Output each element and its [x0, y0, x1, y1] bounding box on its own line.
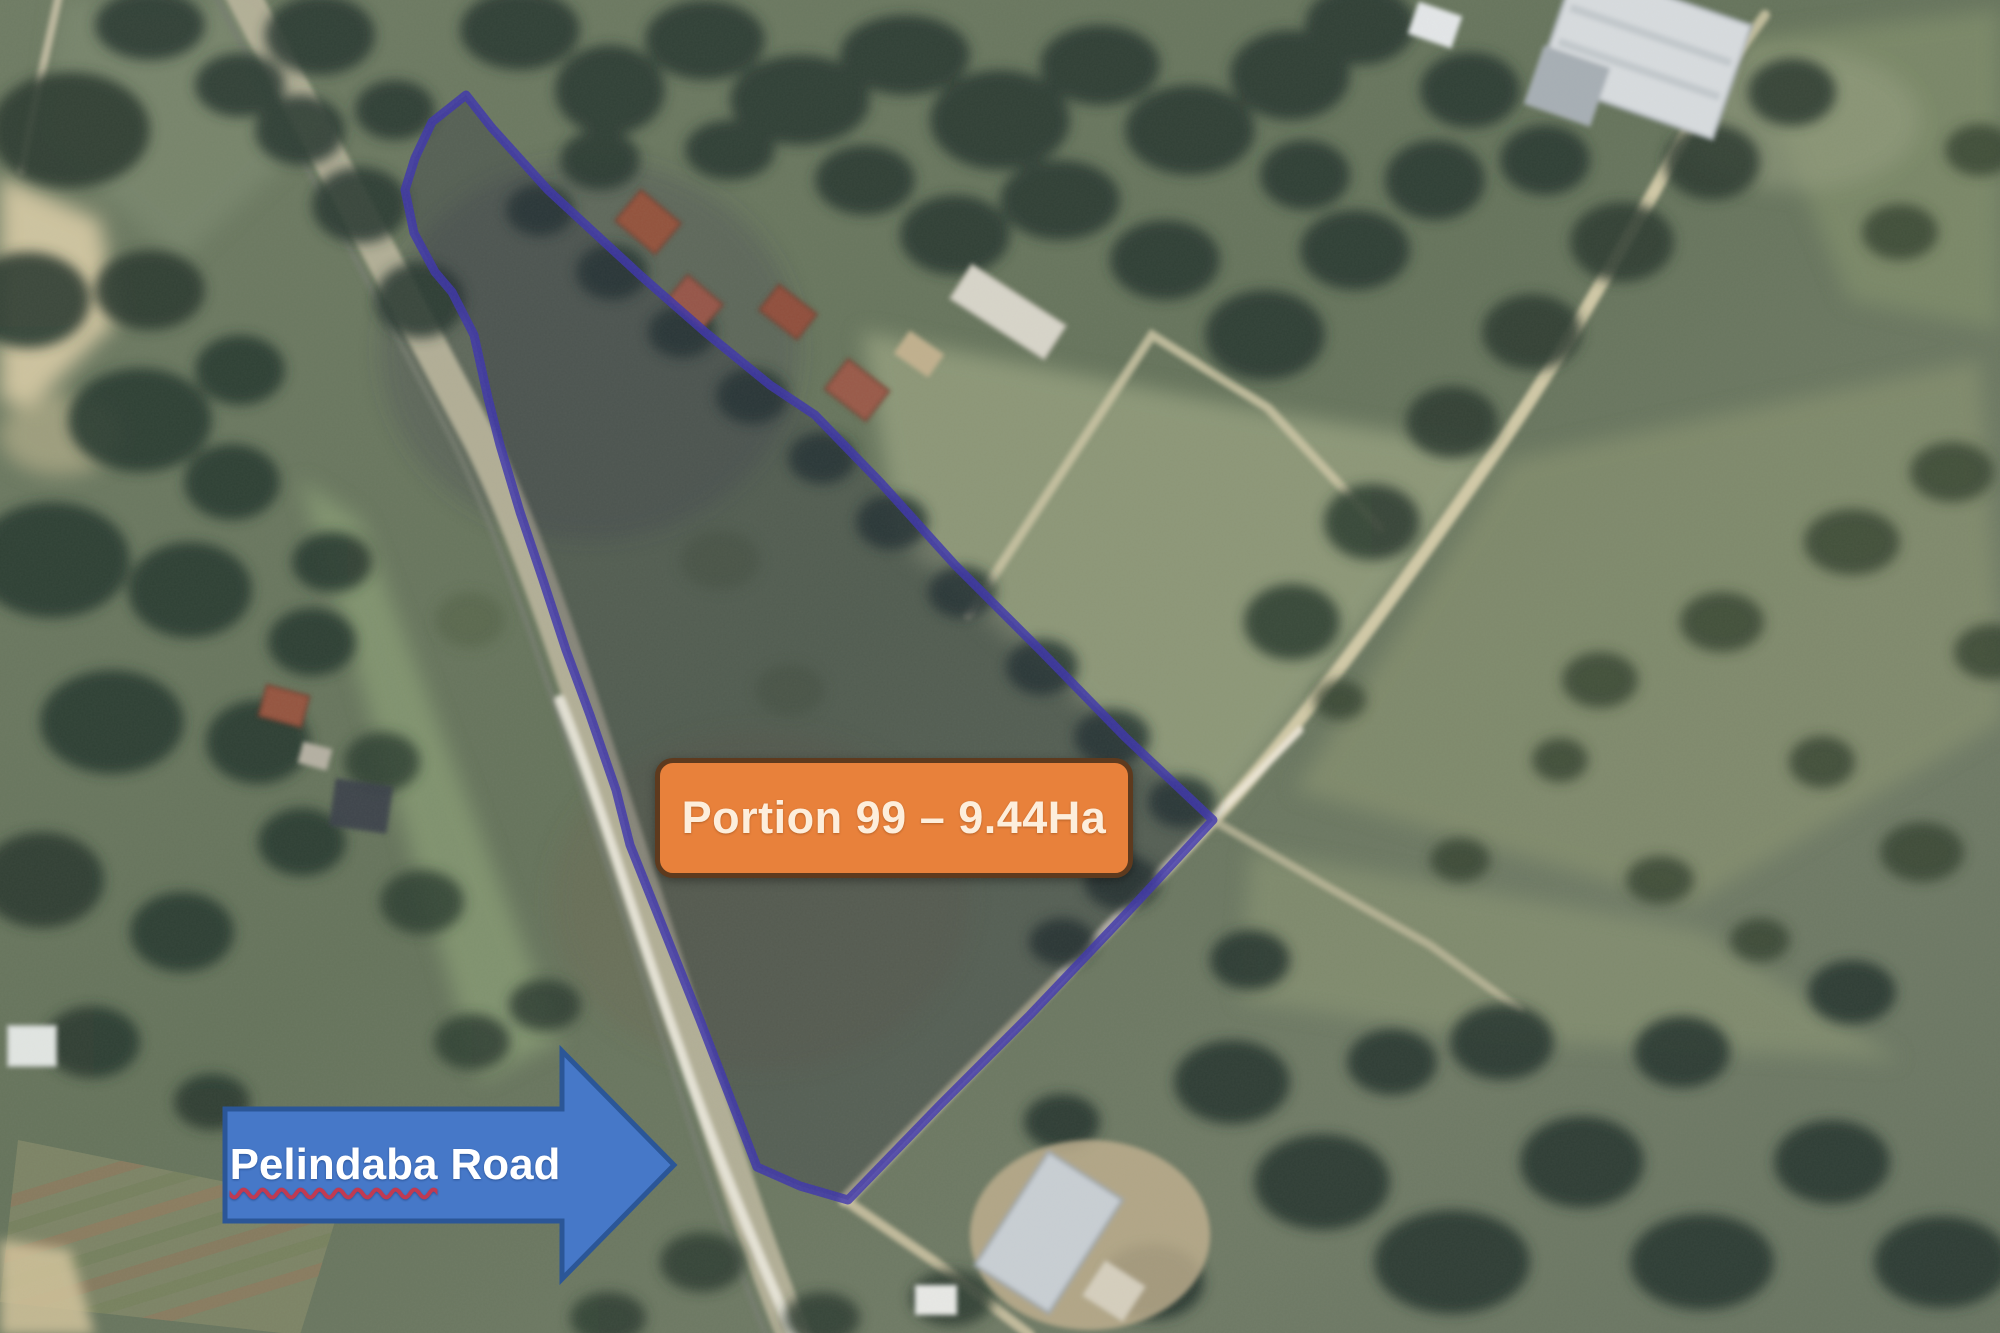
road-arrow: Pelindaba Road	[222, 1045, 680, 1285]
road-label-word: Pelindaba	[230, 1140, 438, 1190]
road-label-rest: Road	[450, 1140, 560, 1190]
portion-label: Portion 99 – 9.44Ha	[655, 758, 1133, 878]
road-label: Pelindaba Road	[228, 1109, 562, 1221]
portion-label-text: Portion 99 – 9.44Ha	[682, 792, 1107, 844]
map-canvas: Portion 99 – 9.44Ha Pelindaba Road	[0, 0, 2000, 1333]
